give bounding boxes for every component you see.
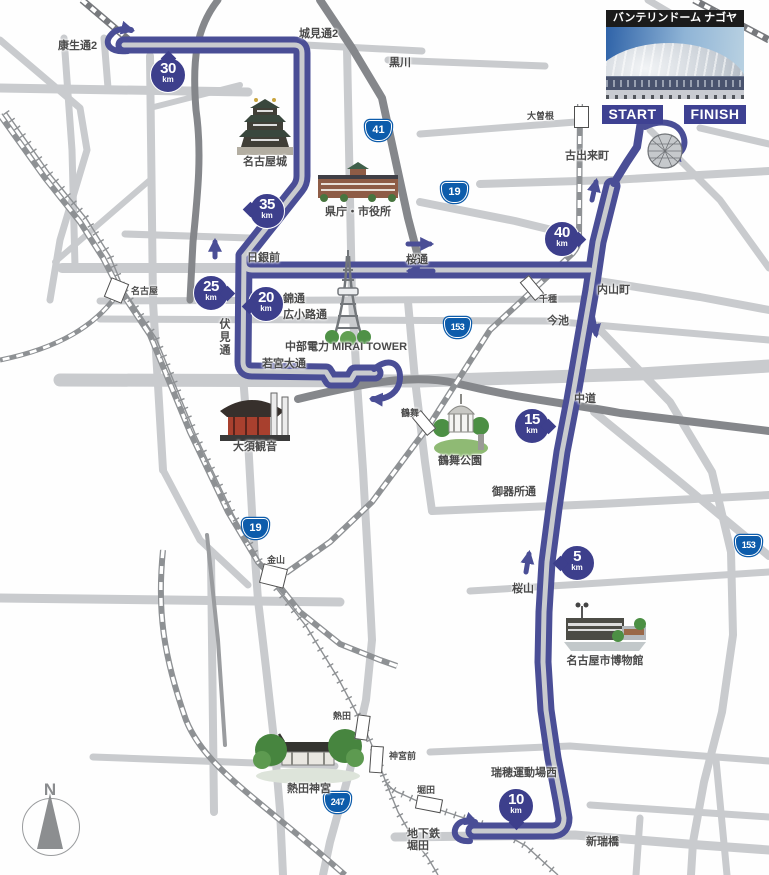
landmark-label-mirai-tower: 中部電力 MIRAI TOWER	[285, 338, 407, 354]
street-label-gokishodori: 御器所通	[492, 483, 536, 499]
dome-card-title: バンテリンドーム ナゴヤ	[606, 10, 744, 27]
km-marker-20: 20km	[248, 286, 284, 322]
street-label-fushimidori: 伏見通	[216, 318, 232, 357]
station-label-horita: 堀田	[417, 783, 435, 796]
street-label-shiromidori2: 城見通2	[299, 25, 338, 41]
street-label-wakamiyaodori: 若宮大通	[262, 355, 306, 371]
geodesic-sphere-monument	[646, 132, 684, 175]
street-label-chikatetsu-horita: 地下鉄 堀田	[407, 828, 440, 852]
street-label-aratamabashi: 新瑞橋	[586, 833, 619, 849]
landmark-label-city-museum: 名古屋市博物館	[567, 652, 644, 668]
km-marker-15: 15km	[514, 408, 550, 444]
mirai-tower-illustration	[324, 250, 372, 350]
compass-needle-icon	[37, 793, 63, 849]
street-label-kurokawa: 黒川	[389, 54, 411, 70]
street-label-sakuradori: 桜通	[406, 251, 428, 267]
station-label-ozone: 大曽根	[527, 109, 554, 122]
city-museum-illustration	[560, 598, 650, 659]
km-marker-30: 30km	[150, 57, 186, 93]
dome-photo	[606, 27, 744, 99]
street-label-kouseidori2: 康生通2	[58, 37, 97, 53]
km-marker-25: 25km	[193, 275, 229, 311]
street-label-nichiginmae: 日銀前	[247, 249, 280, 265]
street-label-sakurayama: 桜山	[512, 580, 534, 596]
start-label: START	[602, 105, 663, 124]
landmark-label-osu-kannon: 大須観音	[233, 438, 277, 454]
km-marker-10: 10km	[498, 788, 534, 824]
station-box-ozone	[574, 106, 589, 128]
street-label-nakamichi: 中道	[574, 390, 596, 406]
station-label-tsurumai: 鶴舞	[401, 406, 419, 419]
landmark-label-nagoya-castle: 名古屋城	[243, 153, 287, 169]
street-label-uchiyamacho: 内山町	[597, 281, 630, 297]
street-label-furudekicho: 古出来町	[565, 147, 609, 163]
station-label-nagoya: 名古屋	[131, 284, 158, 297]
station-box-jingumae	[369, 746, 384, 774]
street-label-mizuho-west: 瑞穂運動場西	[491, 764, 557, 780]
marathon-course-map: バンテリンドーム ナゴヤ START FINISH 5km 10km 15km …	[0, 0, 769, 875]
compass: N	[20, 780, 84, 872]
km-marker-5: 5km	[559, 545, 595, 581]
station-label-chikusa: 千種	[539, 292, 557, 305]
landmark-label-pref-city-hall: 県庁・市役所	[325, 203, 391, 219]
km-marker-40: 40km	[544, 221, 580, 257]
dome-card: バンテリンドーム ナゴヤ	[606, 10, 744, 99]
landmark-label-tsuruma-park: 鶴舞公園	[438, 452, 482, 468]
km-marker-35: 35km	[249, 193, 285, 229]
landmark-label-atsuta-shrine: 熱田神宮	[287, 780, 331, 796]
street-label-nishikidori: 錦通	[283, 290, 305, 306]
atsuta-shrine-illustration	[252, 722, 364, 789]
street-label-imaike: 今池	[547, 312, 569, 328]
finish-label: FINISH	[684, 105, 746, 124]
station-label-jingumae: 神宮前	[389, 749, 416, 762]
street-label-hirokojidori: 広小路通	[283, 306, 327, 322]
station-label-atsuta: 熱田	[333, 709, 351, 722]
station-label-kanayama: 金山	[267, 553, 285, 566]
